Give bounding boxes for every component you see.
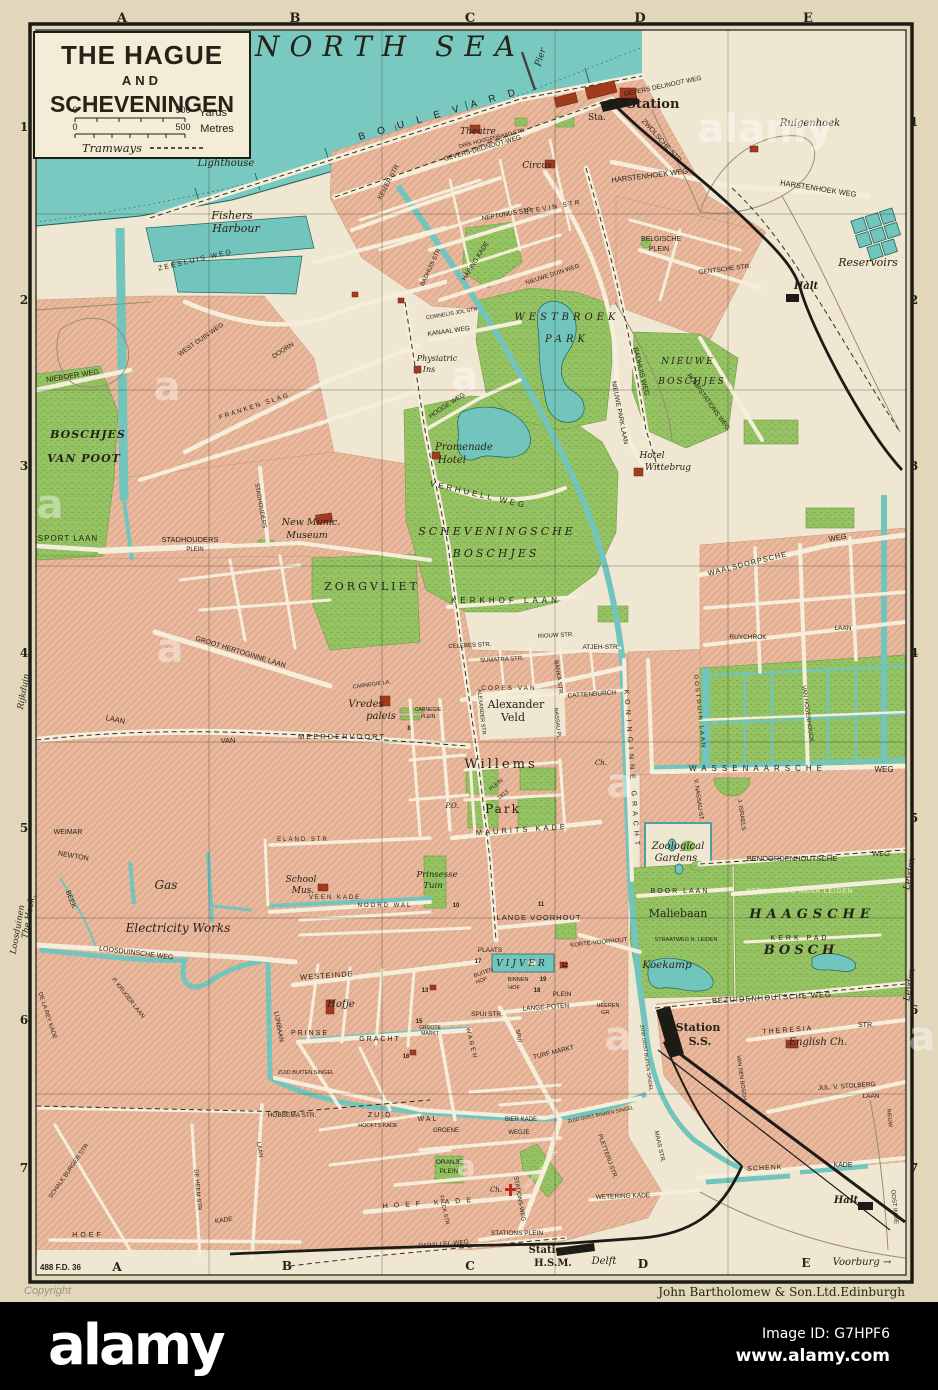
map-label: Halt <box>833 1195 859 1206</box>
map-label: KADE <box>833 1162 852 1169</box>
map-label: A <box>116 11 128 26</box>
map-canvas: ABCDEABCDE12345671234567THE HAGUEANDSCHE… <box>0 0 938 1308</box>
map-label: Promenade <box>434 442 493 453</box>
map-label: HEEREN <box>597 1003 620 1009</box>
map-label: Yards <box>199 107 227 119</box>
map-label: STR. <box>858 1022 874 1029</box>
map-label: 13 <box>422 988 429 994</box>
map-label: 0 <box>72 105 77 115</box>
map-label: B <box>282 1259 292 1273</box>
map-label: 16 <box>403 1054 410 1060</box>
map-label: Station <box>627 97 680 112</box>
map-label: BOOR LAAN <box>651 888 710 895</box>
map-label: 4 <box>910 646 918 660</box>
map-label: Electricity Works <box>125 921 231 935</box>
map-label: 10 <box>453 903 460 909</box>
map-label: C <box>465 11 475 26</box>
map-label: Gas <box>155 878 178 892</box>
map-label: Hotel <box>638 451 664 461</box>
map-label: Copyright <box>24 1285 72 1297</box>
map-label: John Bartholomew & Son.Ltd.Edinburgh <box>656 1285 905 1299</box>
map-label: Willems <box>464 757 537 772</box>
map-label: WASSENAARSCHE <box>689 764 827 773</box>
map-label: Fishers <box>210 209 253 222</box>
map-label: alamy <box>697 106 832 152</box>
map-label: HOF <box>508 985 520 991</box>
image-id: Image ID: G7HPF6 <box>736 1326 890 1342</box>
map-label: BIER KADE <box>505 1117 537 1123</box>
map-label: paleis <box>366 711 396 722</box>
map-label: PLEIN <box>421 714 436 720</box>
map-label: D <box>638 1257 648 1271</box>
map-label: VIJVER <box>496 959 548 969</box>
alamy-url: www.alamy.com <box>736 1346 890 1366</box>
map-label: Zoological <box>651 841 705 852</box>
map-label: THE HAGUE <box>61 40 223 70</box>
map-label: Delft <box>591 1256 618 1267</box>
map-label: 17 <box>475 959 482 965</box>
map-label: GRACHT <box>359 1036 401 1043</box>
map-label: 500 <box>175 122 190 132</box>
map-label: BOSCH <box>763 943 839 958</box>
map-label: 19 <box>540 977 547 983</box>
map-label: HOOFTS KADE <box>358 1123 398 1129</box>
map-label: PLEIN <box>553 991 572 998</box>
map-label: PLEIN <box>186 547 203 553</box>
map-label: 11 <box>538 902 545 908</box>
map-label: Station <box>529 1245 570 1256</box>
map-label: 2 <box>910 293 918 307</box>
map-label: Sta. <box>588 113 606 123</box>
map-label: VAN <box>221 736 236 745</box>
map-label: Ins <box>422 365 435 374</box>
map-label: HOBBEMA STR. <box>268 1112 317 1119</box>
map-label: Veld <box>500 711 525 724</box>
map-label: A <box>111 1260 122 1274</box>
map-label: STADHOUDERS <box>162 535 219 544</box>
footer-meta: Image ID: G7HPF6 www.alamy.com <box>736 1326 890 1366</box>
map-label: ELAND STR <box>277 837 329 843</box>
map-label: English Ch. <box>788 1037 848 1048</box>
map-label: Maliebaan <box>649 907 708 920</box>
map-label: Lighthouse <box>197 158 255 169</box>
map-label: a <box>452 354 479 400</box>
map-label: Koekamp <box>641 959 692 971</box>
map-label: KERKHOF LAAN <box>451 596 561 605</box>
map-label: Vredes <box>348 699 383 710</box>
map-label: Voorburg → <box>833 1257 892 1268</box>
map-label: E <box>801 1256 810 1270</box>
map-label: Tramways <box>82 141 142 155</box>
map-label: SPUI STR. <box>471 1011 503 1018</box>
alamy-footer-bar: alamy Image ID: G7HPF6 www.alamy.com <box>0 1302 938 1390</box>
map-label: WEGJE <box>508 1130 529 1136</box>
map-label: Hotel <box>437 455 466 466</box>
map-label: 12 <box>562 963 569 969</box>
map-label: Alexander <box>487 698 545 711</box>
map-label: STRAATWEG N. LEIDEN <box>655 937 718 943</box>
map-label: KERK PAD <box>771 935 830 942</box>
map-label: LAAN <box>835 625 852 632</box>
map-label: 488 F.D. 36 <box>40 1263 81 1272</box>
map-label: BINNEN <box>508 977 529 983</box>
map-label: SPORT LAAN <box>38 534 98 543</box>
map-label: Tuin <box>423 881 442 891</box>
map-label: WAL <box>418 1116 439 1123</box>
map-label: BELGISCHE <box>641 236 681 243</box>
map-label: WEG <box>872 849 890 858</box>
map-label: VAN POOT <box>47 452 121 465</box>
map-label: RUYCHROK <box>729 634 767 641</box>
map-label: 4 <box>20 646 28 660</box>
map-label: 18 <box>534 988 541 994</box>
map-label: ATJEH-STR. <box>582 644 619 651</box>
map-label: Ch. <box>490 1186 502 1194</box>
map-label: PARK <box>544 334 589 345</box>
map-label: Halt <box>793 281 819 292</box>
map-label: PRINSE <box>291 1030 329 1037</box>
map-label: 2 <box>20 293 28 307</box>
map-label: 7 <box>910 1161 918 1175</box>
map-label: WEG <box>874 765 893 774</box>
map-label: SCHEVENINGSCHE <box>418 525 576 538</box>
map-label: 3 <box>20 459 28 473</box>
map-label: STRAATWEG NAAR LEIDEN <box>747 888 854 895</box>
map-label: 7 <box>20 1161 28 1175</box>
map-label: a <box>157 626 184 672</box>
map-label: Metres <box>200 123 234 135</box>
map-label: a <box>154 364 181 410</box>
map-label: a <box>37 482 64 528</box>
map-label: LANGE VOORHOUT <box>497 913 582 922</box>
map-label: Ch. <box>595 759 607 767</box>
map-label: P.O. <box>444 802 458 810</box>
map-label: HAAGSCHE <box>748 907 874 922</box>
map-label: School <box>286 875 317 885</box>
map-label: Reservoirs <box>837 256 898 269</box>
map-label: COPES VAN <box>481 685 536 692</box>
map-label: 0 <box>72 122 77 132</box>
map-label: 500 <box>175 105 190 115</box>
map-label: MEERDERVOORT <box>298 732 386 741</box>
map-label: HOEF <box>72 1232 103 1239</box>
map-label: 5 <box>910 811 918 825</box>
map-label: H.S.M. <box>534 1258 572 1269</box>
map-label: BENOORDENHOUTSCHE <box>747 854 837 863</box>
map-label: 15 <box>416 1019 423 1025</box>
map-label: NOORD WAL <box>358 903 413 909</box>
map-label: 1 <box>910 115 918 129</box>
map-label: BOSCHJES <box>452 547 540 560</box>
map-label: LAAN <box>863 1093 880 1100</box>
map-label: 3 <box>910 459 918 473</box>
map-label: 6 <box>20 1013 28 1027</box>
map-label: NIEUWE <box>660 357 714 367</box>
stock-photo-page: ABCDEABCDE12345671234567THE HAGUEANDSCHE… <box>0 0 938 1390</box>
map-label: Circus <box>522 161 552 171</box>
map-label: S.S. <box>689 1035 712 1048</box>
map-label: a <box>605 1014 632 1060</box>
map-label: AND <box>122 73 162 88</box>
map-label: E <box>803 11 813 26</box>
map-label: VEEN KADE <box>309 895 361 901</box>
map-label: CARNEGIE <box>415 707 442 713</box>
map-label: ZUID BUITEN SINGEL <box>278 1070 334 1076</box>
map-label: Prinsesse <box>415 870 457 880</box>
map-label: WEIMAR <box>54 829 83 836</box>
map-label: Hofje <box>326 999 355 1010</box>
map-label: New Munic. <box>281 517 340 528</box>
map-label: BOSCHJES <box>49 428 126 441</box>
map-label: 1 <box>20 120 28 134</box>
map-label: Station <box>676 1021 721 1034</box>
map-label: PLAATS <box>478 947 503 954</box>
map-label: D <box>634 11 645 26</box>
map-label: Gardens <box>655 853 698 864</box>
map-label: STATIONS PLEIN <box>491 1230 543 1237</box>
map-label: 5 <box>20 821 28 835</box>
map-label: Museum <box>285 530 327 541</box>
map-label: Harbour <box>211 222 260 235</box>
alamy-logo: alamy <box>48 1318 223 1374</box>
map-label: a <box>607 761 634 807</box>
map-label: PLEIN <box>649 246 669 253</box>
map-label: B <box>290 11 301 26</box>
map-label: C <box>465 1259 475 1273</box>
map-label: a <box>457 1149 476 1182</box>
map-label: ZORGVLIET <box>324 580 420 593</box>
map-label: MARKT <box>421 1031 439 1037</box>
map-label: NORTH SEA <box>254 30 525 63</box>
map-label: Wittebrug <box>645 463 691 473</box>
map-label: Park <box>485 802 521 816</box>
map-label: GROENE <box>433 1128 459 1134</box>
map-label: ZUID <box>368 1112 392 1119</box>
map-label: a <box>909 1014 936 1060</box>
map-label: WESTBROEK <box>515 312 620 323</box>
